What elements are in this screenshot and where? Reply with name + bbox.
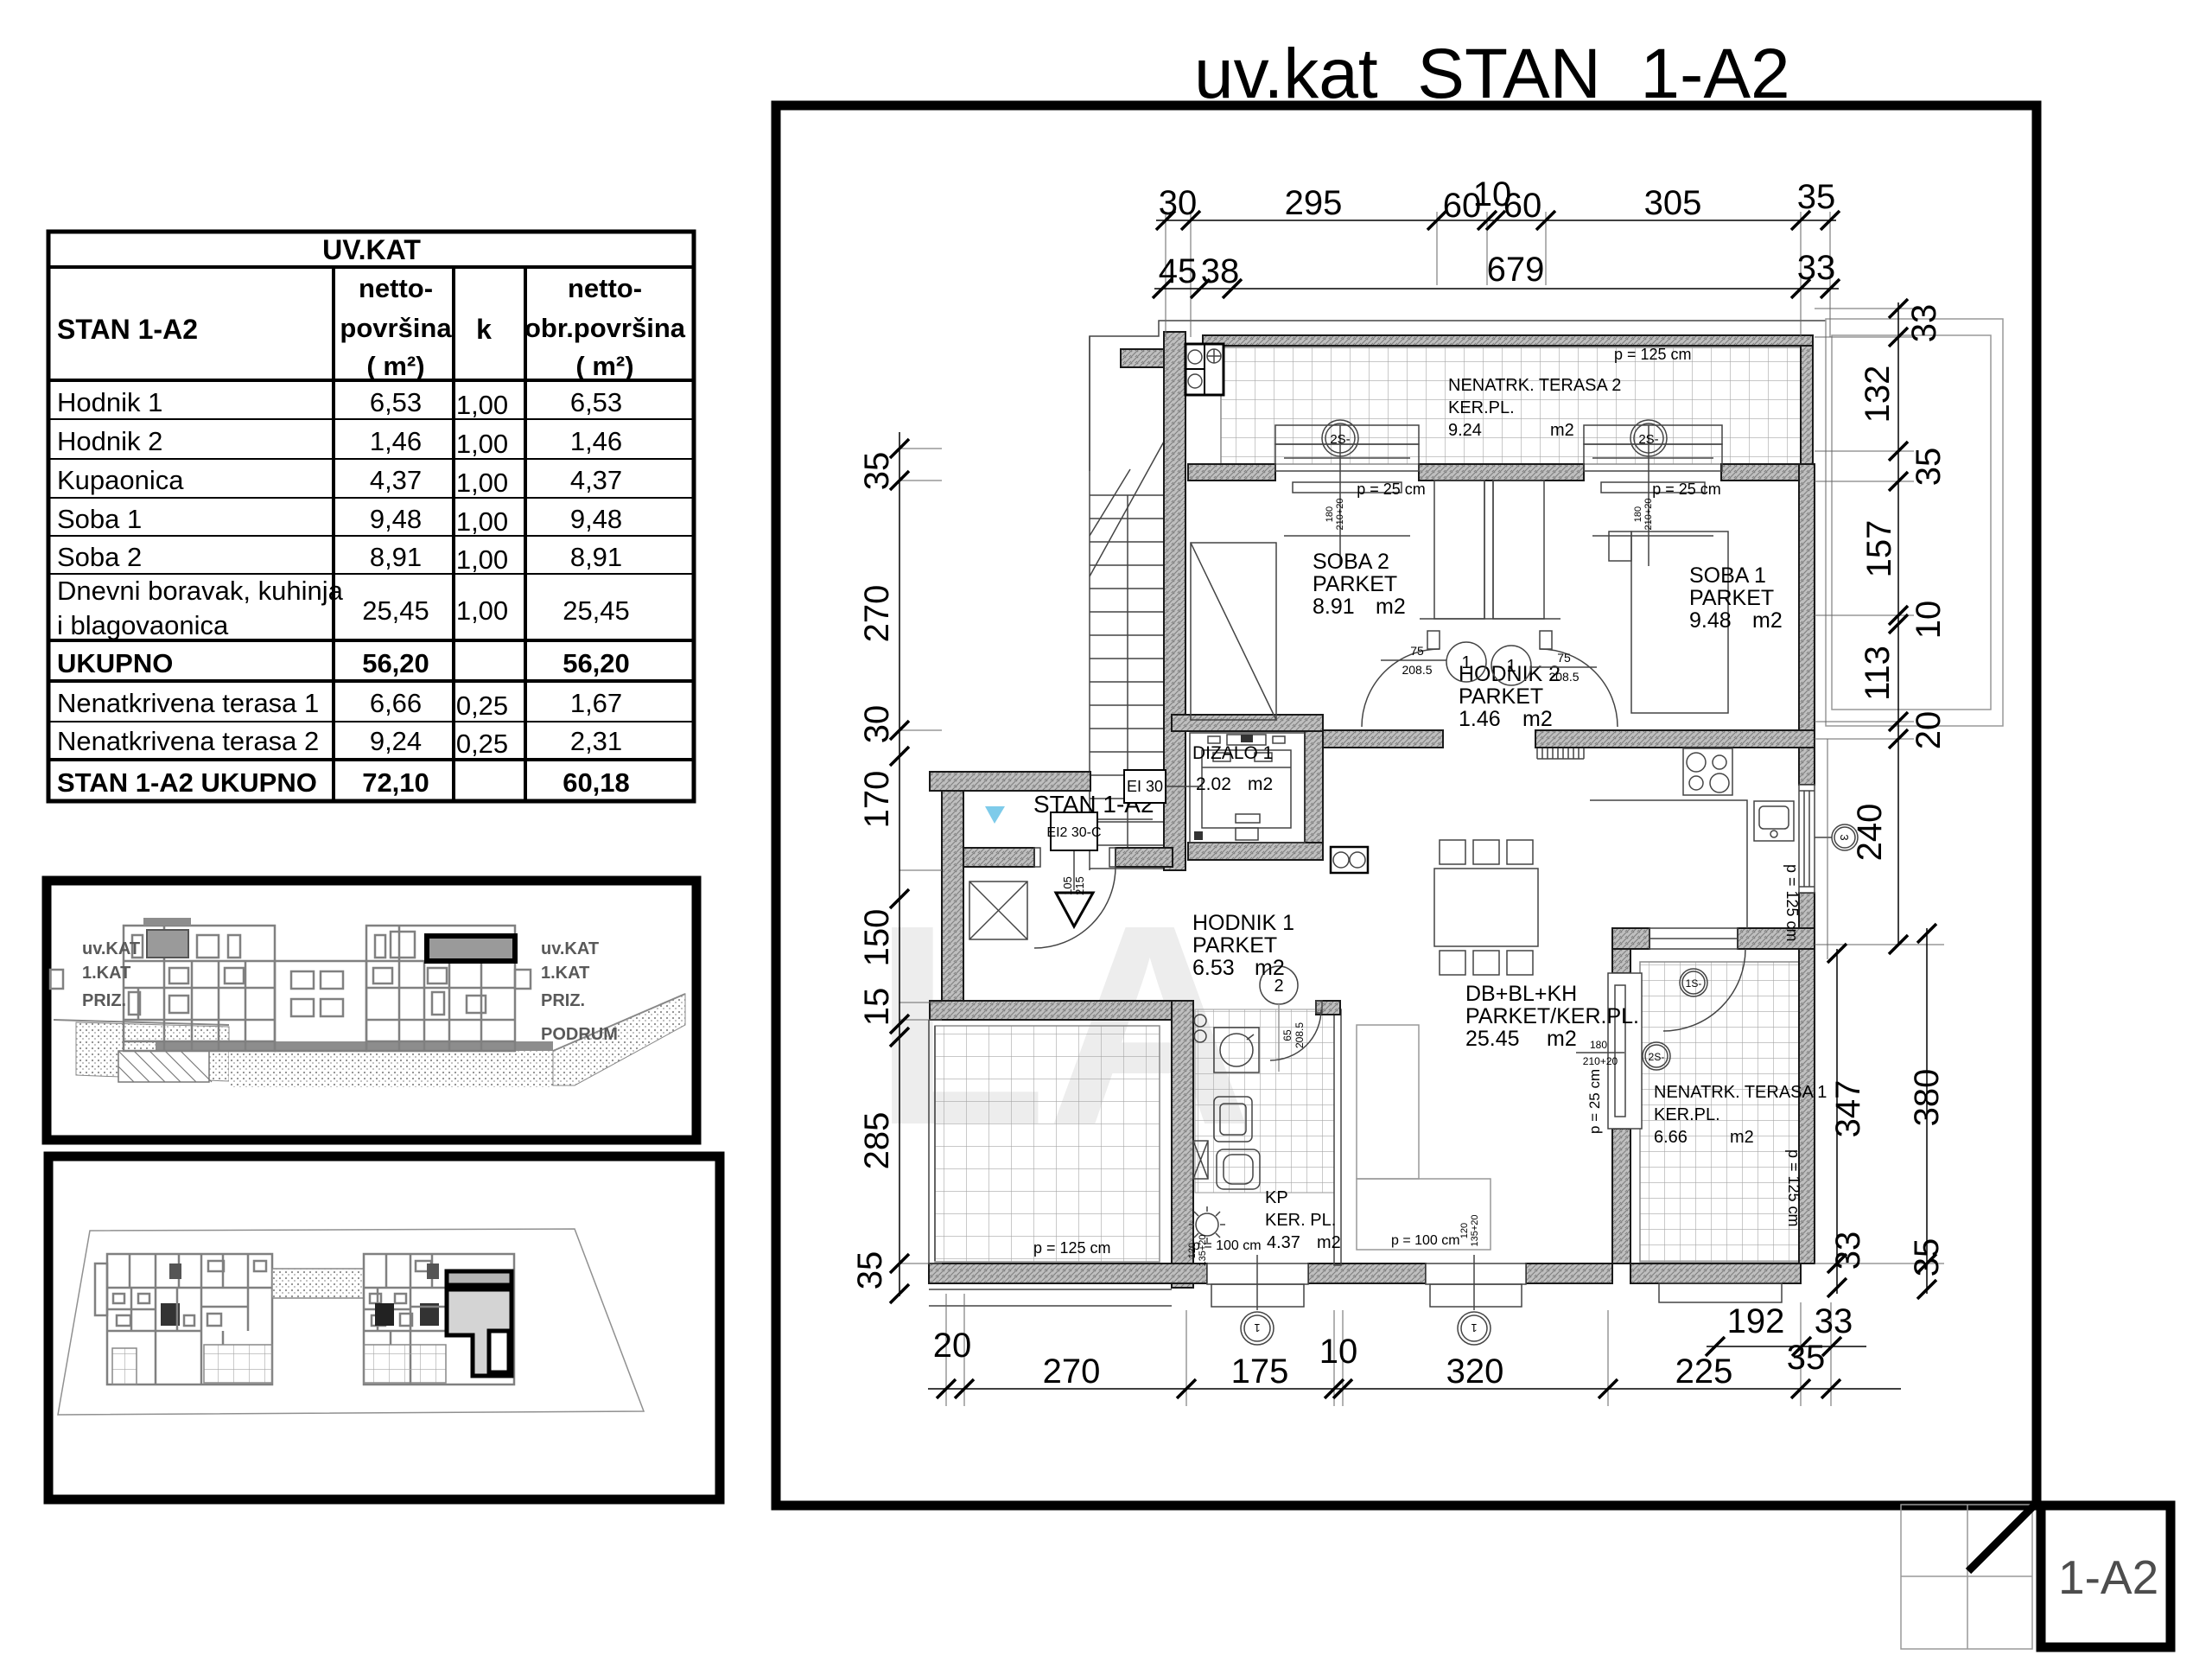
svg-text:20: 20 — [1910, 711, 1948, 750]
svg-text:215: 215 — [1073, 876, 1086, 895]
svg-text:1,00: 1,00 — [456, 390, 508, 420]
svg-text:180: 180 — [1590, 1039, 1607, 1051]
svg-text:Nenatkrivena terasa 2: Nenatkrivena terasa 2 — [57, 726, 319, 756]
svg-text:33: 33 — [1829, 1232, 1867, 1270]
svg-text:KER.PL.: KER.PL. — [1654, 1105, 1720, 1124]
svg-text:PRIZ.: PRIZ. — [82, 991, 126, 1010]
svg-text:305: 305 — [1644, 184, 1702, 222]
svg-text:Nenatkrivena terasa 1: Nenatkrivena terasa 1 — [57, 688, 319, 718]
svg-text:1,00: 1,00 — [456, 429, 508, 459]
svg-text:1S-: 1S- — [1686, 977, 1702, 990]
svg-text:10: 10 — [1319, 1333, 1358, 1371]
svg-text:192: 192 — [1727, 1302, 1785, 1340]
svg-text:m2: m2 — [1255, 956, 1285, 980]
svg-text:1,00: 1,00 — [456, 468, 508, 498]
svg-text:30: 30 — [858, 705, 896, 744]
svg-text:270: 270 — [1043, 1353, 1101, 1391]
svg-text:135+20: 135+20 — [1470, 1214, 1480, 1246]
svg-text:površina: površina — [340, 313, 452, 343]
svg-text:UKUPNO: UKUPNO — [57, 648, 173, 678]
svg-text:m2: m2 — [1522, 707, 1553, 731]
svg-text:210+20: 210+20 — [1643, 498, 1654, 530]
svg-text:PARKET: PARKET — [1689, 586, 1774, 610]
svg-text:6,53: 6,53 — [370, 387, 422, 417]
svg-text:6.66: 6.66 — [1654, 1128, 1688, 1147]
svg-text:120: 120 — [1187, 1243, 1198, 1258]
svg-text:p = 25 cm: p = 25 cm — [1652, 481, 1721, 498]
svg-text:( m²): ( m²) — [366, 351, 424, 381]
svg-text:320: 320 — [1446, 1353, 1504, 1391]
svg-text:75: 75 — [1557, 651, 1571, 665]
svg-text:4,37: 4,37 — [370, 465, 422, 495]
svg-text:NENATRK. TERASA 2: NENATRK. TERASA 2 — [1448, 376, 1621, 395]
svg-text:150: 150 — [858, 909, 896, 967]
svg-text:PARKET/KER.PL.: PARKET/KER.PL. — [1465, 1004, 1639, 1028]
svg-text:p = 125 cm: p = 125 cm — [1614, 346, 1692, 363]
svg-text:0,25: 0,25 — [456, 691, 508, 721]
svg-text:m2: m2 — [1248, 774, 1273, 794]
svg-text:2,31: 2,31 — [570, 726, 622, 756]
svg-text:p = 25 cm: p = 25 cm — [1357, 481, 1426, 498]
svg-text:1: 1 — [1506, 657, 1516, 676]
svg-text:6,53: 6,53 — [570, 387, 622, 417]
svg-text:157: 157 — [1860, 520, 1898, 578]
svg-text:679: 679 — [1487, 251, 1545, 289]
svg-text:Soba 1: Soba 1 — [57, 504, 142, 534]
svg-text:347: 347 — [1829, 1080, 1867, 1138]
svg-text:p = 100 cm: p = 100 cm — [1391, 1233, 1460, 1248]
svg-text:1,00: 1,00 — [456, 506, 508, 537]
svg-text:33: 33 — [1815, 1302, 1853, 1340]
svg-text:1,00: 1,00 — [456, 544, 508, 575]
svg-text:EI2 30-C: EI2 30-C — [1046, 825, 1101, 840]
svg-text:UV.KAT: UV.KAT — [322, 234, 421, 265]
svg-text:m2: m2 — [1550, 421, 1574, 440]
svg-text:2S-: 2S- — [1638, 432, 1658, 447]
svg-text:EI 30: EI 30 — [1127, 778, 1163, 795]
svg-text:1: 1 — [1254, 1321, 1260, 1334]
svg-text:295: 295 — [1285, 184, 1343, 222]
svg-text:208.5: 208.5 — [1402, 663, 1432, 677]
svg-text:Soba 2: Soba 2 — [57, 542, 142, 572]
svg-text:72,10: 72,10 — [362, 767, 429, 798]
svg-text:240: 240 — [1851, 804, 1889, 862]
svg-text:10: 10 — [1910, 601, 1948, 640]
svg-text:6.53: 6.53 — [1192, 956, 1235, 980]
svg-text:p = 125 cm: p = 125 cm — [1785, 1149, 1802, 1227]
svg-text:35: 35 — [1908, 1238, 1946, 1277]
svg-text:45: 45 — [1159, 252, 1198, 290]
svg-text:1,46: 1,46 — [370, 426, 422, 456]
svg-text:8,91: 8,91 — [370, 542, 422, 572]
svg-text:8,91: 8,91 — [570, 542, 622, 572]
svg-text:9.48: 9.48 — [1689, 608, 1732, 633]
svg-text:35: 35 — [1797, 178, 1836, 216]
svg-text:p = 125 cm: p = 125 cm — [1783, 864, 1801, 942]
svg-text:netto-: netto- — [359, 273, 433, 303]
svg-text:9.24: 9.24 — [1448, 421, 1482, 440]
svg-text:KER. PL.: KER. PL. — [1265, 1211, 1336, 1230]
svg-text:k: k — [476, 314, 492, 345]
svg-text:225: 225 — [1675, 1353, 1733, 1391]
svg-text:1,46: 1,46 — [570, 426, 622, 456]
svg-text:PARKET: PARKET — [1192, 933, 1277, 958]
svg-text:20: 20 — [933, 1327, 972, 1365]
svg-text:170: 170 — [858, 771, 896, 829]
svg-text:180: 180 — [1325, 506, 1335, 522]
svg-text:m2: m2 — [1376, 595, 1406, 619]
svg-text:PARKET: PARKET — [1313, 572, 1397, 596]
svg-text:25.45: 25.45 — [1465, 1027, 1520, 1051]
svg-text:Hodnik 2: Hodnik 2 — [57, 426, 162, 456]
svg-text:285: 285 — [858, 1112, 896, 1170]
svg-text:120: 120 — [1459, 1223, 1470, 1238]
svg-text:35: 35 — [851, 1251, 889, 1290]
svg-text:2S-: 2S- — [1649, 1051, 1665, 1063]
svg-text:208.5: 208.5 — [1548, 670, 1579, 684]
svg-text:4,37: 4,37 — [570, 465, 622, 495]
svg-text:8.91: 8.91 — [1313, 595, 1355, 619]
svg-text:2S-: 2S- — [1330, 432, 1350, 447]
svg-text:38: 38 — [1201, 252, 1240, 290]
svg-text:( m²): ( m²) — [575, 351, 633, 381]
svg-text:STAN 1-A2 UKUPNO: STAN 1-A2 UKUPNO — [57, 767, 317, 798]
svg-text:9,48: 9,48 — [570, 504, 622, 534]
svg-text:netto-: netto- — [568, 273, 642, 303]
svg-text:35: 35 — [1910, 448, 1948, 487]
svg-text:1: 1 — [1471, 1321, 1477, 1334]
svg-text:33: 33 — [1905, 304, 1943, 343]
svg-text:1: 1 — [1461, 653, 1471, 672]
svg-text:208.5: 208.5 — [1294, 1022, 1306, 1048]
svg-text:1,00: 1,00 — [456, 595, 508, 626]
svg-text:HODNIK 1: HODNIK 1 — [1192, 911, 1294, 935]
svg-text:SOBA 2: SOBA 2 — [1313, 550, 1389, 574]
svg-text:132: 132 — [1859, 366, 1897, 423]
svg-text:33: 33 — [1797, 249, 1836, 287]
svg-text:PODRUM: PODRUM — [541, 1025, 618, 1044]
svg-text:KER.PL.: KER.PL. — [1448, 398, 1515, 417]
svg-text:180: 180 — [1633, 506, 1643, 522]
svg-text:m2: m2 — [1752, 608, 1783, 633]
svg-text:4.37: 4.37 — [1267, 1233, 1300, 1252]
svg-text:i blagovaonica: i blagovaonica — [57, 610, 229, 640]
svg-text:75: 75 — [1410, 644, 1424, 658]
svg-text:380: 380 — [1908, 1069, 1946, 1127]
svg-text:56,20: 56,20 — [362, 648, 429, 678]
svg-text:1.KAT: 1.KAT — [82, 964, 130, 983]
svg-text:56,20: 56,20 — [563, 648, 630, 678]
svg-text:p = 125 cm: p = 125 cm — [1033, 1239, 1111, 1257]
svg-text:Dnevni boravak, kuhinja: Dnevni boravak, kuhinja — [57, 576, 344, 606]
svg-text:uv.KAT: uv.KAT — [541, 939, 599, 958]
svg-text:6,66: 6,66 — [370, 688, 422, 718]
svg-text:1,67: 1,67 — [570, 688, 622, 718]
svg-text:210+20: 210+20 — [1335, 498, 1345, 530]
svg-text:30: 30 — [1159, 184, 1198, 222]
svg-text:p = 25 cm: p = 25 cm — [1586, 1069, 1603, 1134]
svg-text:2.02: 2.02 — [1196, 774, 1231, 794]
svg-text:NENATRK. TERASA 1: NENATRK. TERASA 1 — [1654, 1083, 1827, 1102]
svg-text:210+20: 210+20 — [1583, 1055, 1618, 1067]
svg-text:25,45: 25,45 — [563, 595, 630, 626]
svg-text:PARKET: PARKET — [1459, 684, 1543, 709]
svg-text:9,48: 9,48 — [370, 504, 422, 534]
svg-text:15: 15 — [858, 988, 896, 1027]
svg-text:0,25: 0,25 — [456, 729, 508, 759]
svg-text:KP: KP — [1265, 1188, 1288, 1207]
svg-text:135+20: 135+20 — [1198, 1234, 1208, 1266]
svg-text:35: 35 — [858, 452, 896, 491]
svg-text:113: 113 — [1859, 646, 1897, 701]
svg-text:SOBA 1: SOBA 1 — [1689, 563, 1766, 588]
svg-text:m2: m2 — [1547, 1027, 1577, 1051]
svg-text:270: 270 — [858, 585, 896, 643]
svg-text:1.46: 1.46 — [1459, 707, 1501, 731]
svg-text:175: 175 — [1231, 1353, 1289, 1391]
svg-text:25,45: 25,45 — [362, 595, 429, 626]
svg-text:35: 35 — [1787, 1339, 1826, 1377]
svg-text:60: 60 — [1503, 187, 1542, 225]
svg-text:obr.površina: obr.površina — [524, 313, 686, 343]
svg-text:3: 3 — [1838, 834, 1851, 840]
svg-text:m2: m2 — [1317, 1233, 1341, 1252]
svg-text:Kupaonica: Kupaonica — [57, 465, 184, 495]
svg-text:uv.KAT: uv.KAT — [82, 939, 140, 958]
svg-text:65: 65 — [1281, 1029, 1294, 1041]
svg-text:STAN 1-A2: STAN 1-A2 — [57, 314, 198, 345]
svg-text:m2: m2 — [1730, 1128, 1754, 1147]
svg-text:1.KAT: 1.KAT — [541, 964, 589, 983]
svg-text:1-A2: 1-A2 — [2058, 1550, 2158, 1604]
svg-text:DIZALO 1: DIZALO 1 — [1192, 743, 1273, 763]
svg-text:Hodnik 1: Hodnik 1 — [57, 387, 162, 417]
svg-text:105: 105 — [1061, 876, 1074, 895]
svg-text:DB+BL+KH: DB+BL+KH — [1465, 982, 1577, 1006]
svg-text:PRIZ.: PRIZ. — [541, 991, 585, 1010]
svg-text:60,18: 60,18 — [563, 767, 630, 798]
svg-text:9,24: 9,24 — [370, 726, 422, 756]
